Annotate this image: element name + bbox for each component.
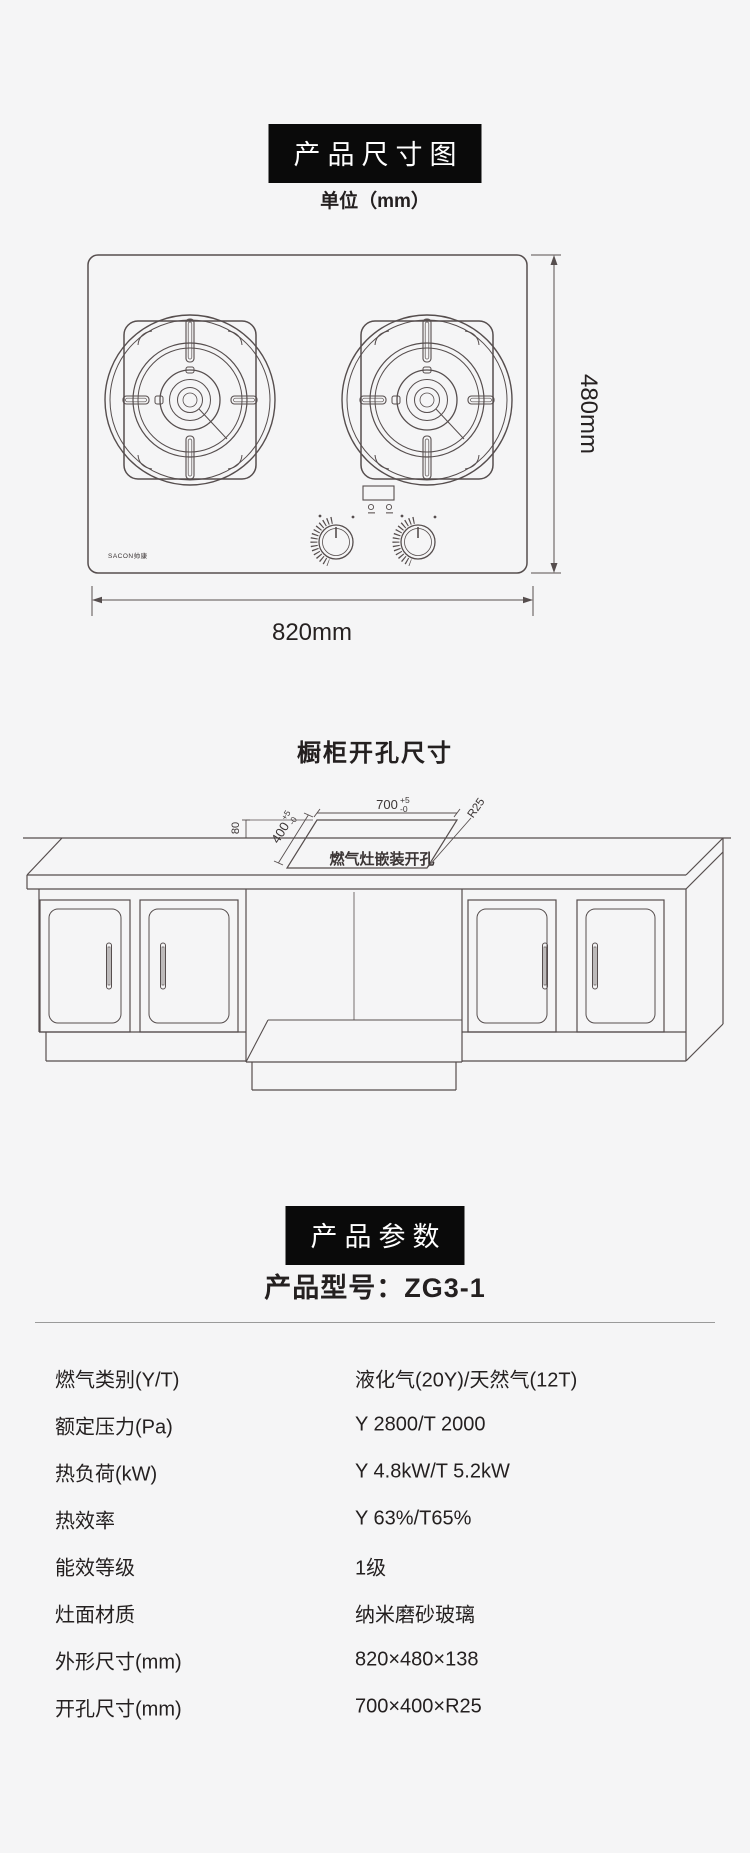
spec-value: Y 2800/T 2000 — [355, 1413, 486, 1436]
cutout-opening: 燃气灶嵌装开孔 — [287, 820, 457, 868]
spec-value: 液化气(20Y)/天然气(12T) — [355, 1363, 577, 1392]
spec-label: 外形尺寸(mm) — [55, 1645, 182, 1674]
spec-label: 热负荷(kW) — [55, 1457, 157, 1486]
cabinet-body — [39, 889, 723, 1061]
corner-radius-label: R25 — [466, 796, 488, 820]
spec-label: 额定压力(Pa) — [55, 1410, 173, 1439]
left-burner — [105, 315, 275, 485]
divider-line — [35, 1322, 715, 1323]
width-dimension: 820mm — [92, 586, 533, 646]
height-dimension-label: 480mm — [575, 374, 602, 454]
table-row: 燃气类别(Y/T) 液化气(20Y)/天然气(12T) — [55, 1354, 695, 1401]
cutout-depth-tol-sub: -0 — [287, 815, 300, 827]
spec-value: 700×400×R25 — [355, 1695, 482, 1718]
right-knob — [396, 515, 436, 563]
cabinet-drawing: 燃气灶嵌装开孔 700 +5 -0 400 +5 -0 R25 80 — [15, 780, 740, 1100]
spec-value: Y 63%/T65% — [355, 1507, 471, 1530]
spec-label: 燃气类别(Y/T) — [55, 1363, 179, 1392]
dimension-section-badge: 产品尺寸图 — [269, 124, 482, 183]
unit-label: 单位（mm） — [320, 186, 430, 213]
spec-label: 能效等级 — [55, 1551, 135, 1580]
cutout-width-dimension: 700 +5 -0 — [314, 795, 460, 817]
table-row: 灶面材质 纳米磨砂玻璃 — [55, 1589, 695, 1636]
stove-dimension-drawing: SACON帅康 480mm 820mm — [60, 248, 620, 648]
right-burner — [342, 315, 512, 485]
table-row: 额定压力(Pa) Y 2800/T 2000 — [55, 1401, 695, 1448]
cutout-opening-label: 燃气灶嵌装开孔 — [329, 850, 434, 868]
height-dimension: 480mm — [531, 255, 602, 573]
cutout-section-title: 橱柜开孔尺寸 — [297, 733, 453, 768]
left-knob — [314, 515, 354, 563]
stove-cavity — [246, 889, 462, 1090]
stove-panel-outline — [88, 255, 527, 573]
spec-table: 燃气类别(Y/T) 液化气(20Y)/天然气(12T) 额定压力(Pa) Y 2… — [55, 1354, 695, 1730]
corner-radius-annotation: R25 — [428, 796, 488, 867]
spec-label: 开孔尺寸(mm) — [55, 1692, 182, 1721]
display-module — [363, 486, 394, 514]
product-model: 产品型号：ZG3-1 — [264, 1266, 486, 1305]
spec-value: 纳米磨砂玻璃 — [355, 1598, 475, 1627]
table-row: 开孔尺寸(mm) 700×400×R25 — [55, 1683, 695, 1730]
spec-value: 1级 — [355, 1551, 386, 1580]
spec-value: 820×480×138 — [355, 1648, 478, 1671]
cutout-width-tol-sub: -0 — [400, 804, 408, 814]
params-section-badge: 产品参数 — [286, 1206, 465, 1265]
spec-label: 热效率 — [55, 1504, 115, 1533]
cutout-width-value: 700 — [376, 797, 398, 812]
brand-logo: SACON帅康 — [108, 551, 148, 560]
table-row: 能效等级 1级 — [55, 1542, 695, 1589]
spec-value: Y 4.8kW/T 5.2kW — [355, 1460, 510, 1483]
table-row: 外形尺寸(mm) 820×480×138 — [55, 1636, 695, 1683]
back-offset-label: 80 — [230, 822, 242, 834]
width-dimension-label: 820mm — [272, 619, 352, 646]
cabinet-doors — [40, 900, 664, 1032]
table-row: 热效率 Y 63%/T65% — [55, 1495, 695, 1542]
table-row: 热负荷(kW) Y 4.8kW/T 5.2kW — [55, 1448, 695, 1495]
spec-label: 灶面材质 — [55, 1598, 135, 1627]
